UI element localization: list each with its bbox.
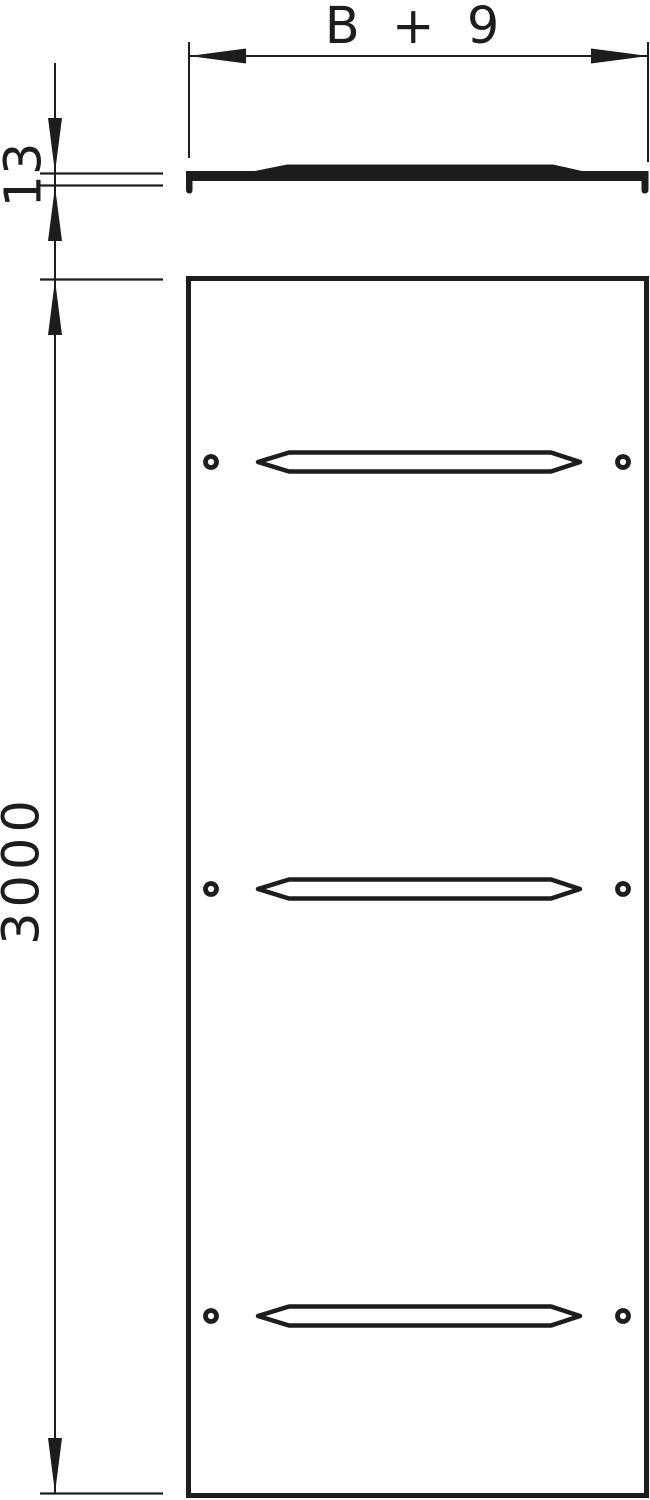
cover-slot — [258, 453, 580, 472]
width-dimension — [189, 42, 648, 162]
cover-hole — [618, 884, 629, 895]
technical-drawing: B + 9 13 3000 — [0, 0, 650, 1500]
width-arrowhead-right — [591, 49, 648, 64]
cover-hole — [206, 457, 217, 468]
length-arrowhead-top — [48, 280, 62, 335]
length-dimension-label: 3000 — [0, 795, 52, 945]
width-dimension-label: B + 9 — [325, 0, 500, 56]
vertical-dimension-lines — [40, 63, 163, 1494]
cover-hole — [618, 1311, 629, 1322]
cover-hole — [618, 457, 629, 468]
filled-layer: B + 9 13 3000 — [0, 0, 649, 1493]
cover-section-view — [186, 165, 649, 194]
width-arrowhead-left — [189, 49, 246, 64]
cover-hole — [206, 884, 217, 895]
cover-slot — [258, 1307, 580, 1326]
linework-layer — [40, 42, 648, 1496]
cover-hole — [206, 1311, 217, 1322]
thickness-dimension-label: 13 — [0, 143, 54, 208]
cover-plan-view — [189, 279, 647, 1496]
cover-slot — [258, 880, 580, 899]
length-arrowhead-bottom — [48, 1438, 62, 1493]
